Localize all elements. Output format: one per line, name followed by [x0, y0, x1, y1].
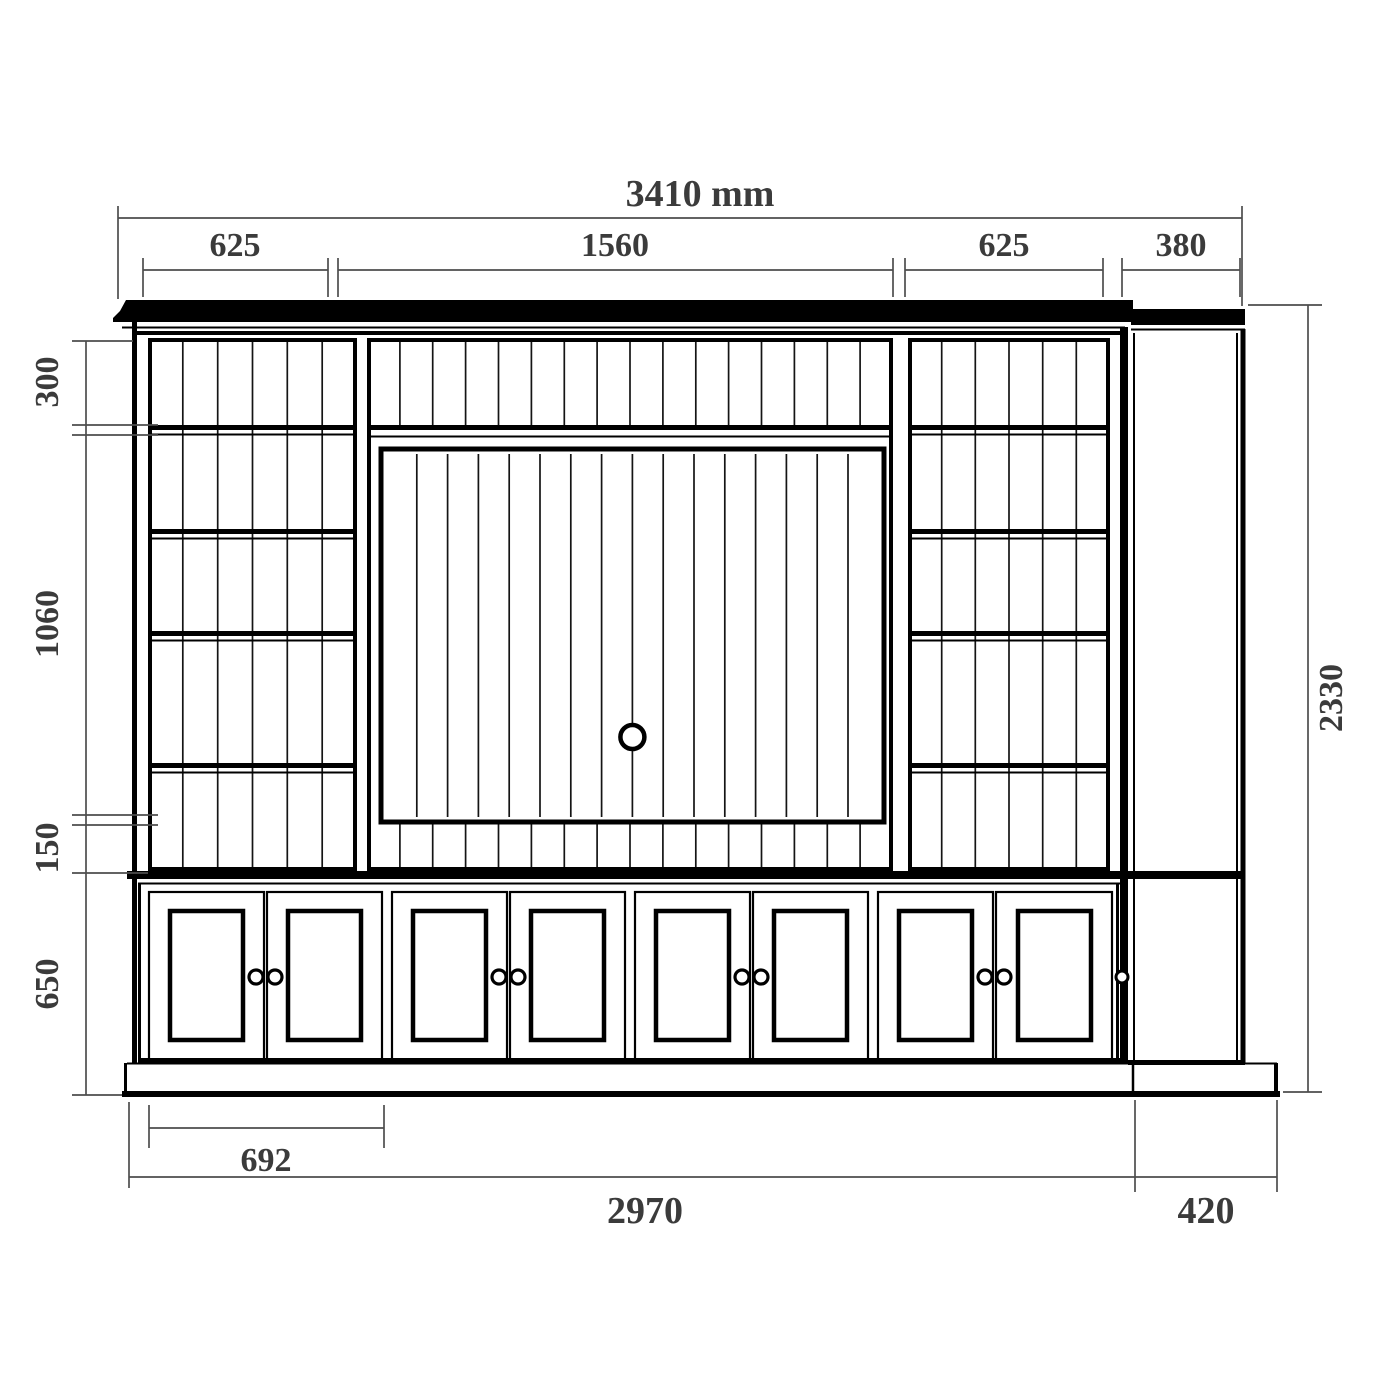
plinth — [122, 1063, 1280, 1097]
right-bookcase-beadboard — [942, 342, 1077, 869]
dim-label-gap-height: 150 — [29, 823, 66, 874]
dim-label-center-bay: 1560 — [581, 227, 649, 264]
dim-label-right-bay: 625 — [979, 227, 1030, 264]
dim-label-overall-width: 3410 mm — [626, 173, 775, 215]
dim-label-first-cabinet: 692 — [241, 1142, 292, 1179]
main-crown — [113, 300, 1133, 322]
base-top-rail — [127, 871, 1245, 879]
tv-panel-beadboard — [417, 454, 848, 817]
dim-label-overall-height: 2330 — [1313, 664, 1350, 732]
cable-grommet-hole — [620, 725, 644, 749]
cabinet-2 — [392, 892, 625, 1060]
door-knob — [249, 970, 263, 984]
base-cabinets — [127, 871, 1245, 1065]
crown-molding — [113, 300, 1245, 330]
cabinet-4 — [878, 892, 1112, 1060]
door-panel — [899, 911, 972, 1040]
door-leaf — [878, 892, 993, 1060]
door-leaf — [510, 892, 625, 1060]
side-return-panel — [1134, 329, 1243, 1063]
left-bookcase-beadboard — [183, 342, 322, 869]
door-knob — [754, 970, 768, 984]
plinth-bottom-edge — [122, 1091, 1280, 1097]
cabinet-elevation-drawing: 3410 mm 625 1560 625 380 300 1060 150 65… — [0, 0, 1400, 1400]
door-knob — [492, 970, 506, 984]
door-panel — [1018, 911, 1091, 1040]
beadboard-planks — [183, 342, 1077, 869]
dim-label-left-bay: 625 — [210, 227, 261, 264]
door-panel — [774, 911, 847, 1040]
cabinet-1 — [149, 892, 382, 1060]
dim-overall-width — [118, 206, 1242, 306]
dim-bottom-row — [129, 1100, 1277, 1192]
door-leaf — [267, 892, 382, 1060]
door-panel — [531, 911, 604, 1040]
door-leaf — [753, 892, 868, 1060]
dim-overall-height — [1248, 305, 1322, 1092]
dim-label-top-section-height: 300 — [29, 357, 66, 408]
door-leaf — [392, 892, 507, 1060]
center-bottom-band-beadboard — [400, 824, 860, 869]
side-door-knob — [1116, 971, 1128, 983]
door-panel — [288, 911, 361, 1040]
dim-left-column — [72, 341, 158, 1095]
center-top-band-beadboard — [400, 342, 860, 425]
dim-label-main-run: 2970 — [607, 1190, 683, 1232]
side-return-top-band — [1131, 309, 1245, 325]
door-knob — [978, 970, 992, 984]
dim-label-side-return-depth: 420 — [1178, 1190, 1235, 1232]
door-panel — [413, 911, 486, 1040]
dim-label-side-return-width: 380 — [1156, 227, 1207, 264]
door-leaf — [635, 892, 750, 1060]
door-panel — [656, 911, 729, 1040]
door-leaf — [149, 892, 264, 1060]
dim-top-row — [143, 258, 1240, 297]
door-knob — [997, 970, 1011, 984]
cabinet-3 — [635, 892, 868, 1060]
door-knob — [268, 970, 282, 984]
door-panel — [170, 911, 243, 1040]
door-knob — [511, 970, 525, 984]
dim-label-base-height: 650 — [29, 959, 66, 1010]
door-leaf — [996, 892, 1112, 1060]
drawing-canvas: 3410 mm 625 1560 625 380 300 1060 150 65… — [0, 0, 1400, 1400]
shelves — [150, 428, 1108, 773]
door-knob — [735, 970, 749, 984]
dim-label-middle-section-height: 1060 — [29, 590, 66, 658]
